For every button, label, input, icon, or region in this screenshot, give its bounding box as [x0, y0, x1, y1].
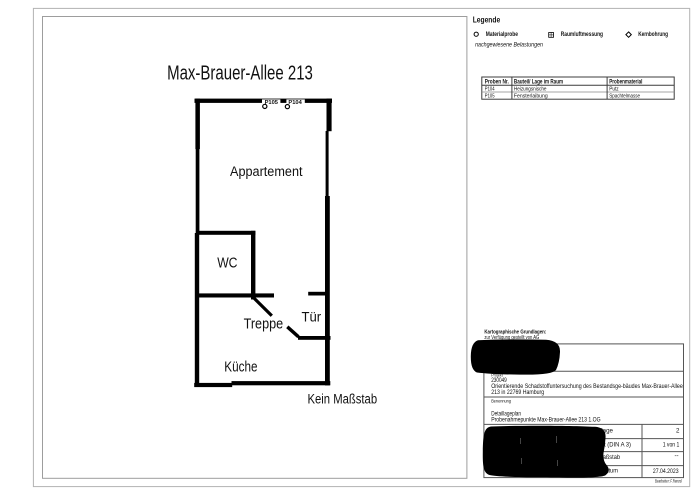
svg-text:Bauteil/ Lage im Raum: Bauteil/ Lage im Raum — [514, 80, 563, 86]
svg-text:Materialprobe: Materialprobe — [486, 32, 519, 38]
svg-text:P104: P104 — [288, 100, 302, 106]
svg-text:Benennung: Benennung — [491, 398, 511, 404]
svg-text:WC: WC — [217, 255, 237, 272]
svg-text:Appartement: Appartement — [230, 164, 303, 179]
svg-text:Proben Nr.: Proben Nr. — [485, 80, 509, 86]
svg-text:27.04.2023: 27.04.2023 — [653, 468, 679, 475]
svg-text:nachgewiesene Belastungen: nachgewiesene Belastungen — [475, 42, 543, 49]
svg-text:Probenahmepunkte Max-Brauer-Al: Probenahmepunkte Max-Brauer-Allee 213 1.… — [491, 416, 601, 423]
svg-text:Bearbeiter: F.Renzel: Bearbeiter: F.Renzel — [655, 478, 682, 483]
svg-text:Kein Maßstab: Kein Maßstab — [308, 391, 378, 406]
svg-text:2: 2 — [676, 427, 680, 434]
svg-text:Tür: Tür — [302, 308, 322, 324]
svg-text:P104: P104 — [485, 87, 495, 93]
svg-text:Raumluftmessung: Raumluftmessung — [561, 32, 603, 38]
svg-text:Treppe: Treppe — [244, 317, 284, 333]
svg-text:Spachtelmasse: Spachtelmasse — [609, 94, 640, 100]
svg-text:Küche: Küche — [224, 359, 257, 375]
svg-text:Probenmaterial: Probenmaterial — [609, 80, 642, 86]
svg-text:Max-Brauer-Allee 213: Max-Brauer-Allee 213 — [167, 63, 313, 85]
svg-text:Legende: Legende — [473, 14, 501, 24]
svg-text:--: -- — [674, 453, 678, 460]
svg-text:P105: P105 — [485, 94, 495, 100]
svg-text:1 von 1: 1 von 1 — [663, 441, 680, 448]
svg-text:Fensterlaibung: Fensterlaibung — [514, 94, 548, 100]
svg-text:Kernbohrung: Kernbohrung — [638, 32, 668, 38]
svg-text:Putz: Putz — [609, 87, 619, 93]
svg-text:Heizungsnische: Heizungsnische — [514, 87, 547, 93]
svg-text:213 in 22769 Hamburg: 213 in 22769 Hamburg — [491, 389, 544, 396]
